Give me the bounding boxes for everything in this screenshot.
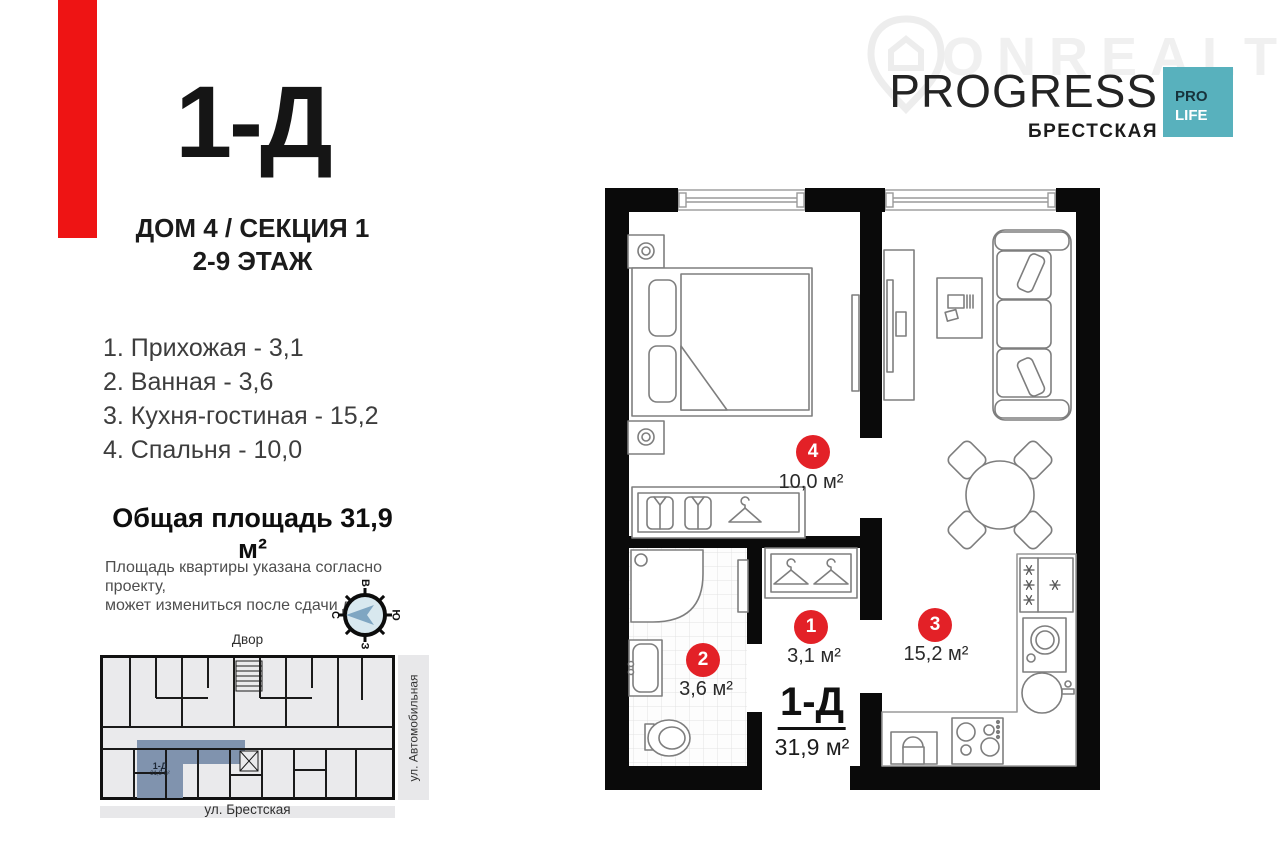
toilet [645,720,690,756]
nightstand [628,421,664,454]
room-badge-2: 2 [686,643,720,677]
sofa [993,230,1071,420]
nightstand [628,235,664,268]
brand-name: PROGRESS [889,68,1158,114]
street-right-label: ул. Автомобильная [407,674,421,781]
room-area-2: 3,6 м² [679,678,733,701]
compass-south: Ю [390,609,402,620]
courtyard-label: Двор [100,632,395,647]
room-list-item: 3. Кухня-гостиная - 15,2 [103,399,379,433]
room-area-1: 3,1 м² [787,645,841,668]
floors: 2-9 ЭТАЖ [100,246,405,277]
floor-plan: 4 10,0 м² 1 3,1 м² 2 3,6 м² 3 15,2 м² 1-… [605,188,1100,790]
kitchen-cabinet [891,732,937,764]
flyer-canvas: ONREALT PROGRESS БРЕСТСКАЯ PRO LIFE 1-Д … [0,0,1280,854]
bedroom-wardrobe [632,487,805,538]
bathroom-sink [629,640,663,696]
divider [778,727,846,730]
brand-location: БРЕСТСКАЯ [889,121,1158,143]
coffee-table [937,278,982,338]
apartment-area: 31,9 м² [775,734,850,761]
hallway-wardrobe [765,548,857,598]
room-badge-4: 4 [796,435,830,469]
brand-badge-pro: PRO [1175,88,1233,107]
accent-red-bar [58,0,97,238]
brand-badge-life: LIFE [1175,107,1233,126]
street-right: ул. Автомобильная [398,655,429,800]
stove-icon [952,718,1003,764]
room-list-item: 2. Ванная - 3,6 [103,365,379,399]
room-area-3: 15,2 м² [904,643,969,666]
room-badge-1: 1 [794,610,828,644]
room-area-4: 10,0 м² [779,471,844,494]
bedroom-shelf [852,295,859,391]
washing-machine-icon [1023,618,1066,672]
apartment-label: 1-Д 31,9 м² [775,680,850,761]
elevator-icon [240,751,258,771]
room-list: 1. Прихожая - 3,1 2. Ванная - 3,6 3. Кух… [103,331,379,467]
stairs-icon [236,661,262,691]
highlighted-unit-label: 1-Д 31,9 м² [137,742,183,796]
total-area: Общая площадь 31,9 м² [100,503,405,565]
apartment-code: 1-Д [775,680,850,724]
room-list-item: 1. Прихожая - 3,1 [103,331,379,365]
compass-north: С [329,611,341,619]
window [678,190,805,210]
fridge-icon [1020,558,1073,612]
page-title: 1-Д [100,66,405,178]
tv-unit [884,250,914,400]
brand-logo: PROGRESS БРЕСТСКАЯ [889,68,1158,143]
street-bottom-label: ул. Брестская [100,802,395,817]
window [885,190,1056,210]
bed [632,268,812,416]
room-badge-3: 3 [918,608,952,642]
bathroom-door-leaf [738,560,748,612]
building-section: ДОМ 4 / СЕКЦИЯ 1 [100,213,405,244]
compass-east: В [359,579,371,587]
dining-table [946,439,1054,551]
room-list-item: 4. Спальня - 10,0 [103,433,379,467]
brand-badge: PRO LIFE [1163,67,1233,137]
